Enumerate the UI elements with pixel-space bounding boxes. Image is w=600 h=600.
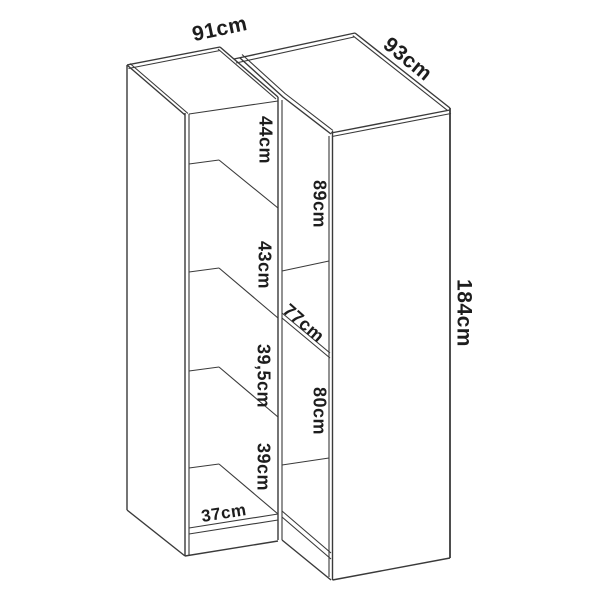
corner-top-front-inner — [332, 114, 451, 137]
corner-top-left-depth-edge — [240, 58, 331, 134]
label-overall-height: 184cm — [452, 279, 475, 347]
left-unit-top-depth-inner — [130, 64, 188, 114]
corner-bottom-front-edge — [333, 558, 451, 580]
left-unit-bottom-depth-edge — [127, 510, 185, 556]
corner-top-back-left-edge — [234, 33, 355, 59]
label-base-depth: 37cm — [200, 500, 248, 526]
left-unit-bottom-front-edge — [185, 541, 278, 556]
interior-ceiling-line — [189, 101, 278, 114]
dimension-diagram: 91cm 93cm 184cm 89cm 77cm 80cm 44cm 43cm… — [0, 0, 600, 600]
wardrobe-line-drawing: 91cm 93cm 184cm 89cm 77cm 80cm 44cm 43cm… — [0, 0, 600, 600]
shelf-3-back-line — [189, 367, 219, 371]
left-unit-top-back-inner — [129, 51, 221, 69]
left-unit-top-front-edge — [220, 47, 278, 97]
shelf-1-diagonal — [219, 160, 278, 208]
floor-back-line — [189, 464, 219, 468]
side-divider-lower — [282, 458, 329, 465]
corner-top-back-left-inner — [236, 37, 354, 63]
shelf-2-back-line — [189, 268, 219, 272]
shelf-1-back-line — [189, 160, 219, 164]
side-divider-upper — [282, 261, 329, 271]
label-compartment-4: 39cm — [253, 443, 273, 491]
corner-top-front-edge — [331, 110, 450, 133]
label-corner-diagonal-width: 77cm — [279, 300, 328, 347]
label-corner-lower-height: 80cm — [309, 387, 329, 435]
label-left-unit-width: 91cm — [190, 12, 249, 46]
side-plinth-top-inner — [282, 517, 331, 559]
label-corner-upper-height: 89cm — [309, 180, 329, 228]
left-unit-top-depth-edge — [127, 65, 185, 115]
label-compartment-1: 44cm — [255, 116, 275, 164]
left-unit-top-back-edge — [127, 47, 220, 65]
label-compartment-3: 39,5cm — [253, 344, 273, 408]
label-compartment-2: 43cm — [254, 241, 274, 289]
